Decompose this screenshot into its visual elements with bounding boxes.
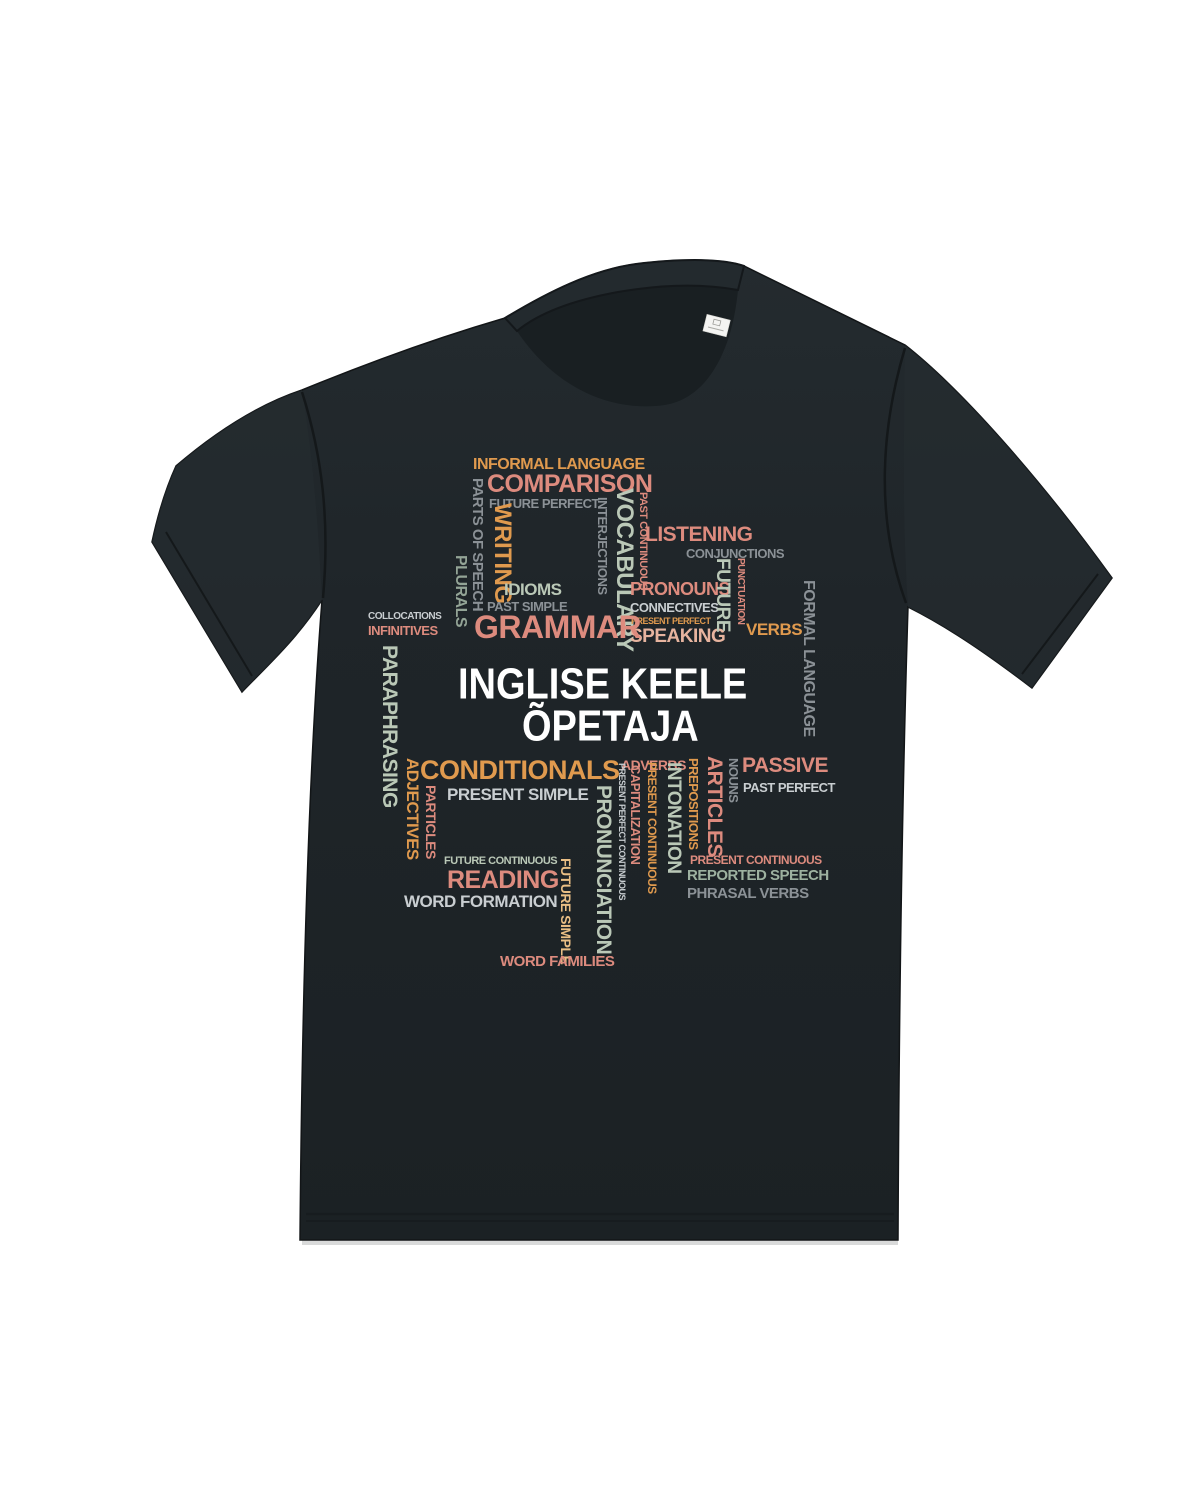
word-phrasal-verbs: PHRASAL VERBS	[687, 886, 809, 901]
word-future-simple: FUTURE SIMPLE	[559, 858, 573, 964]
word-nouns: NOUNS	[727, 758, 740, 802]
word-pronunciation: PRONUNCIATION	[593, 785, 614, 954]
word-grammar: GRAMMAR	[474, 611, 641, 643]
word-idioms: IDIOMS	[504, 581, 561, 598]
word-present-continuous-vertical: PRESENT CONTINUOUS	[646, 762, 658, 894]
word-adjectives: ADJECTIVES	[404, 758, 421, 860]
word-articles: ARTICLES	[704, 756, 725, 857]
word-reading: READING	[447, 868, 559, 893]
word-particles: PARTICLES	[424, 785, 438, 859]
right-sleeve-shading	[904, 345, 1112, 688]
word-intonation: INTONATION	[664, 762, 683, 873]
word-word-formation: WORD FORMATION	[404, 893, 557, 910]
word-reported-speech: REPORTED SPEECH	[687, 868, 829, 883]
word-conditionals: CONDITIONALS	[420, 757, 620, 784]
word-collocations: COLLOCATIONS	[368, 612, 441, 622]
word-punctuation: PUNCTUATION	[735, 558, 745, 625]
word-listening: LISTENING	[645, 524, 753, 545]
word-capitalization: CAPITALIZATION	[629, 765, 642, 864]
word-formal-language: FORMAL LANGUAGE	[800, 580, 816, 737]
word-interjections: INTERJECTIONS	[596, 497, 609, 595]
word-present-simple: PRESENT SIMPLE	[447, 786, 588, 803]
word-paraphrasing: PARAPHRASING	[379, 645, 400, 808]
word-prepositions: PREPOSITIONS	[687, 758, 700, 850]
word-infinitives: INFINITIVES	[368, 624, 438, 637]
word-passive: PASSIVE	[742, 755, 828, 776]
design-title-line2: ÕPETAJA	[522, 705, 699, 749]
word-plurals: PLURALS	[452, 555, 468, 627]
word-present-perfect-continuous: PRESENT PERFECT CONTINUOUS	[617, 763, 626, 900]
word-connectives: CONNECTIVES	[630, 601, 718, 614]
product-photo: INFORMAL LANGUAGE COMPARISON FUTURE PERF…	[0, 0, 1200, 1500]
word-present-perfect: PRESENT PERFECT	[631, 617, 711, 626]
word-past-perfect: PAST PERFECT	[743, 781, 835, 794]
word-word-families: WORD FAMILIES	[500, 954, 614, 969]
left-sleeve-shading	[152, 390, 322, 692]
word-parts-of-speech: PARTS OF SPEECH	[470, 478, 485, 611]
word-speaking: SPEAKING	[630, 627, 725, 646]
word-verbs: VERBS	[746, 621, 802, 638]
design-title-line1: INGLISE KEELE	[458, 663, 747, 707]
word-present-continuous-horizontal: PRESENT CONTINUOUS	[690, 854, 822, 866]
word-future: FUTURE	[713, 558, 732, 632]
